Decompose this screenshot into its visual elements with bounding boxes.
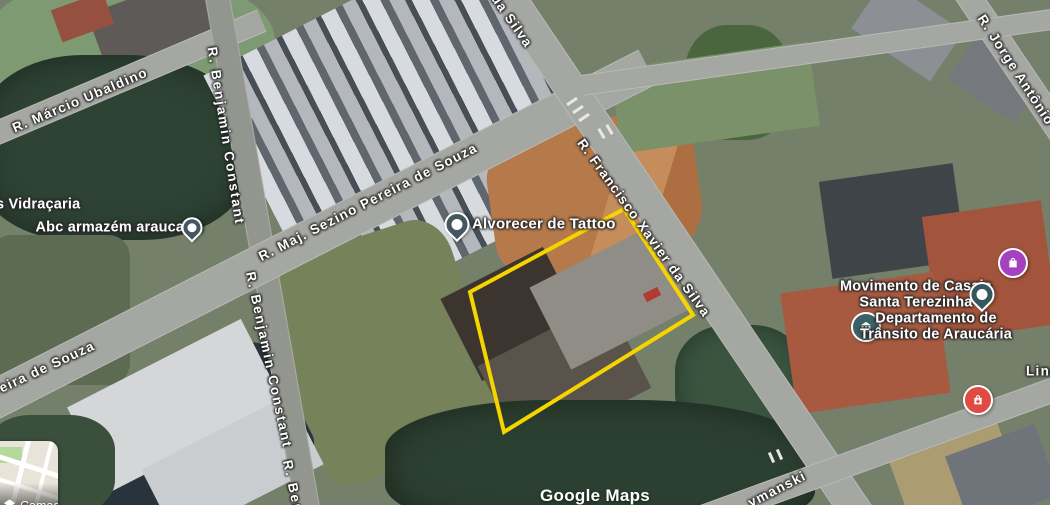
layers-label: Camadas [20, 499, 58, 505]
pharmacy-bag-icon [971, 393, 985, 407]
shopping-poi-pin[interactable] [998, 248, 1028, 278]
pin-dot [449, 217, 465, 233]
pin-dot [186, 221, 199, 234]
poi-label-abc-armazem[interactable]: Abc armazém araucaria [35, 220, 202, 236]
poi-label-departamento-transito[interactable]: Departamento de Trânsito de Araucária [860, 312, 1012, 343]
street-label-ling-cut: Ling [1026, 364, 1050, 379]
poi-label-line1: Departamento de [860, 312, 1012, 328]
pin-dot [974, 287, 990, 303]
shopping-bag-icon [1006, 256, 1020, 270]
poi-label-vidracaria[interactable]: s Vidraçaria [0, 197, 80, 213]
layers-control[interactable]: Camadas [0, 441, 58, 505]
google-maps-watermark[interactable]: Google Maps [540, 486, 650, 505]
satellite-map-canvas[interactable]: R. Márcio Ubaldino R. Benjamin Constant … [0, 0, 1050, 505]
poi-label-alvorecer-tattoo[interactable]: Alvorecer de Tattoo [472, 216, 616, 232]
poi-label-line2: Trânsito de Araucária [860, 327, 1012, 343]
health-poi-pin[interactable] [963, 385, 993, 415]
layers-icon [2, 498, 17, 505]
